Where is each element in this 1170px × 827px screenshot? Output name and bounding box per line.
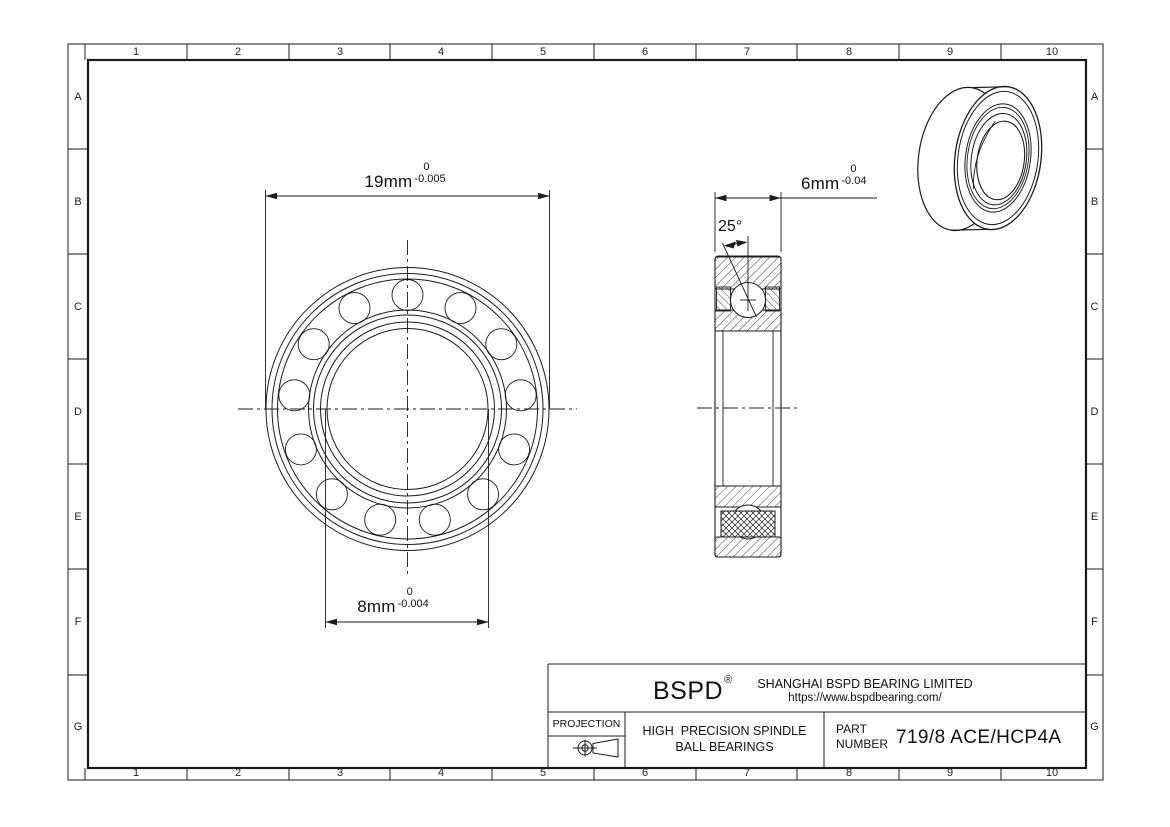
grid-col-label: 5 — [523, 766, 563, 780]
cage-top-right — [766, 287, 780, 311]
registered-trademark: ® — [724, 674, 733, 686]
dim-tolerance: 0 -0.04 — [841, 164, 866, 187]
grid-col-label: 9 — [930, 45, 970, 59]
frame-borders — [68, 44, 1103, 780]
contact-angle-label: 25° — [718, 218, 742, 236]
grid-row-label: E — [68, 510, 88, 524]
grid-row-label: F — [1086, 615, 1103, 629]
grid-row-label: D — [68, 405, 88, 419]
grid-col-label: 2 — [218, 766, 258, 780]
grid-col-label: 7 — [727, 45, 767, 59]
projection-symbol — [573, 739, 618, 757]
grid-col-label: 1 — [116, 45, 156, 59]
grid-col-label: 3 — [320, 45, 360, 59]
cage-bottom-crosshatch — [721, 511, 775, 537]
dim-tolerance: 0 -0.004 — [398, 587, 429, 610]
grid-col-label: 2 — [218, 45, 258, 59]
isometric-view — [909, 76, 1051, 242]
dim-width: 6mm 0 -0.04 — [801, 164, 866, 194]
grid-row-label: G — [1086, 720, 1103, 734]
grid-col-label: 7 — [727, 766, 767, 780]
grid-col-label: 5 — [523, 45, 563, 59]
grid-row-label: D — [1086, 405, 1103, 419]
dim-tolerance: 0 -0.005 — [414, 162, 445, 185]
company-website: https://www.bspdbearing.com/ — [736, 692, 994, 705]
grid-row-label: B — [1086, 195, 1103, 209]
grid-row-label: A — [1086, 90, 1103, 104]
grid-row-label: F — [68, 615, 88, 629]
brand-logo: BSPD ® — [653, 677, 733, 706]
grid-col-label: 6 — [625, 45, 665, 59]
grid-col-label: 8 — [829, 766, 869, 780]
brand-text: BSPD — [653, 677, 723, 706]
dim-value: 19mm — [364, 172, 412, 192]
grid-col-label: 6 — [625, 766, 665, 780]
front-centerlines — [238, 240, 577, 578]
company-block: SHANGHAI BSPD BEARING LIMITED https://ww… — [736, 677, 994, 705]
part-number-value: 719/8 ACE/HCP4A — [896, 727, 1061, 749]
product-line-2: BALL BEARINGS — [626, 739, 823, 755]
drawing-sheet: 1 2 3 4 5 6 7 8 9 10 1 2 3 4 5 6 7 8 9 1… — [0, 0, 1170, 827]
product-line-1: HIGH PRECISION SPINDLE — [626, 723, 823, 739]
drawing-linework — [0, 0, 1170, 827]
projection-label: PROJECTION — [549, 718, 624, 730]
grid-col-label: 10 — [1032, 45, 1072, 59]
dim-value: 6mm — [801, 174, 839, 194]
dim-bore-diameter: 8mm 0 -0.004 — [318, 587, 468, 617]
part-number-label: PART NUMBER — [836, 722, 888, 752]
grid-row-label: B — [68, 195, 88, 209]
section-view — [697, 256, 800, 557]
grid-col-label: 10 — [1032, 766, 1072, 780]
grid-row-label: E — [1086, 510, 1103, 524]
grid-col-label: 1 — [116, 766, 156, 780]
grid-row-label: C — [1086, 300, 1103, 314]
grid-col-label: 3 — [320, 766, 360, 780]
grid-col-label: 4 — [421, 766, 461, 780]
cage-top-left — [717, 287, 731, 311]
grid-row-label: A — [68, 90, 88, 104]
outer-ring-bottom-hatch — [715, 537, 781, 557]
grid-row-label: C — [68, 300, 88, 314]
product-description: HIGH PRECISION SPINDLE BALL BEARINGS — [626, 723, 823, 755]
dim-outer-diameter: 19mm 0 -0.005 — [330, 162, 480, 192]
grid-col-label: 8 — [829, 45, 869, 59]
grid-col-label: 9 — [930, 766, 970, 780]
grid-row-label: G — [68, 720, 88, 734]
dim-value: 8mm — [357, 597, 395, 617]
front-view — [238, 240, 577, 578]
grid-col-label: 4 — [421, 45, 461, 59]
company-name: SHANGHAI BSPD BEARING LIMITED — [736, 677, 994, 692]
inner-ring-bottom-hatch — [715, 486, 781, 507]
